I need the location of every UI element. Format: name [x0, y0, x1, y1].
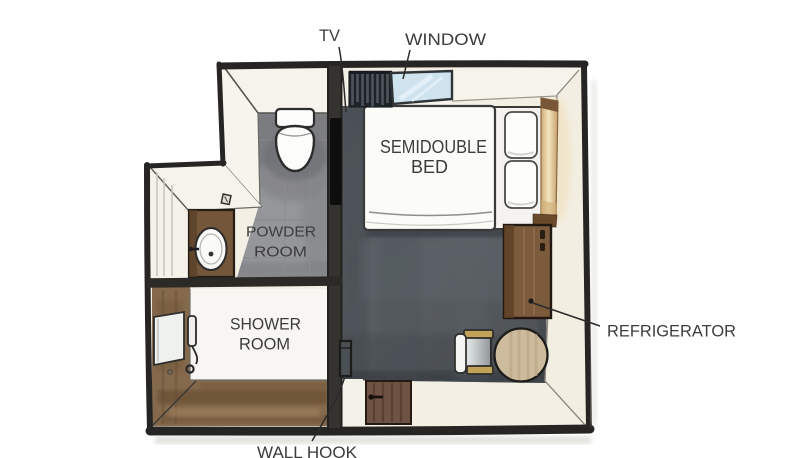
svg-text:BED: BED	[411, 157, 448, 177]
svg-text:SHOWER: SHOWER	[230, 316, 301, 334]
svg-text:REFRIGERATOR: REFRIGERATOR	[607, 322, 736, 341]
svg-text:ROOM: ROOM	[254, 244, 307, 261]
svg-text:ROOM: ROOM	[239, 336, 290, 354]
svg-text:WINDOW: WINDOW	[405, 30, 486, 49]
svg-text:SEMIDOUBLE: SEMIDOUBLE	[380, 137, 487, 157]
svg-text:WALL HOOK: WALL HOOK	[257, 443, 358, 458]
svg-text:POWDER: POWDER	[246, 224, 316, 241]
svg-text:TV: TV	[319, 27, 340, 45]
